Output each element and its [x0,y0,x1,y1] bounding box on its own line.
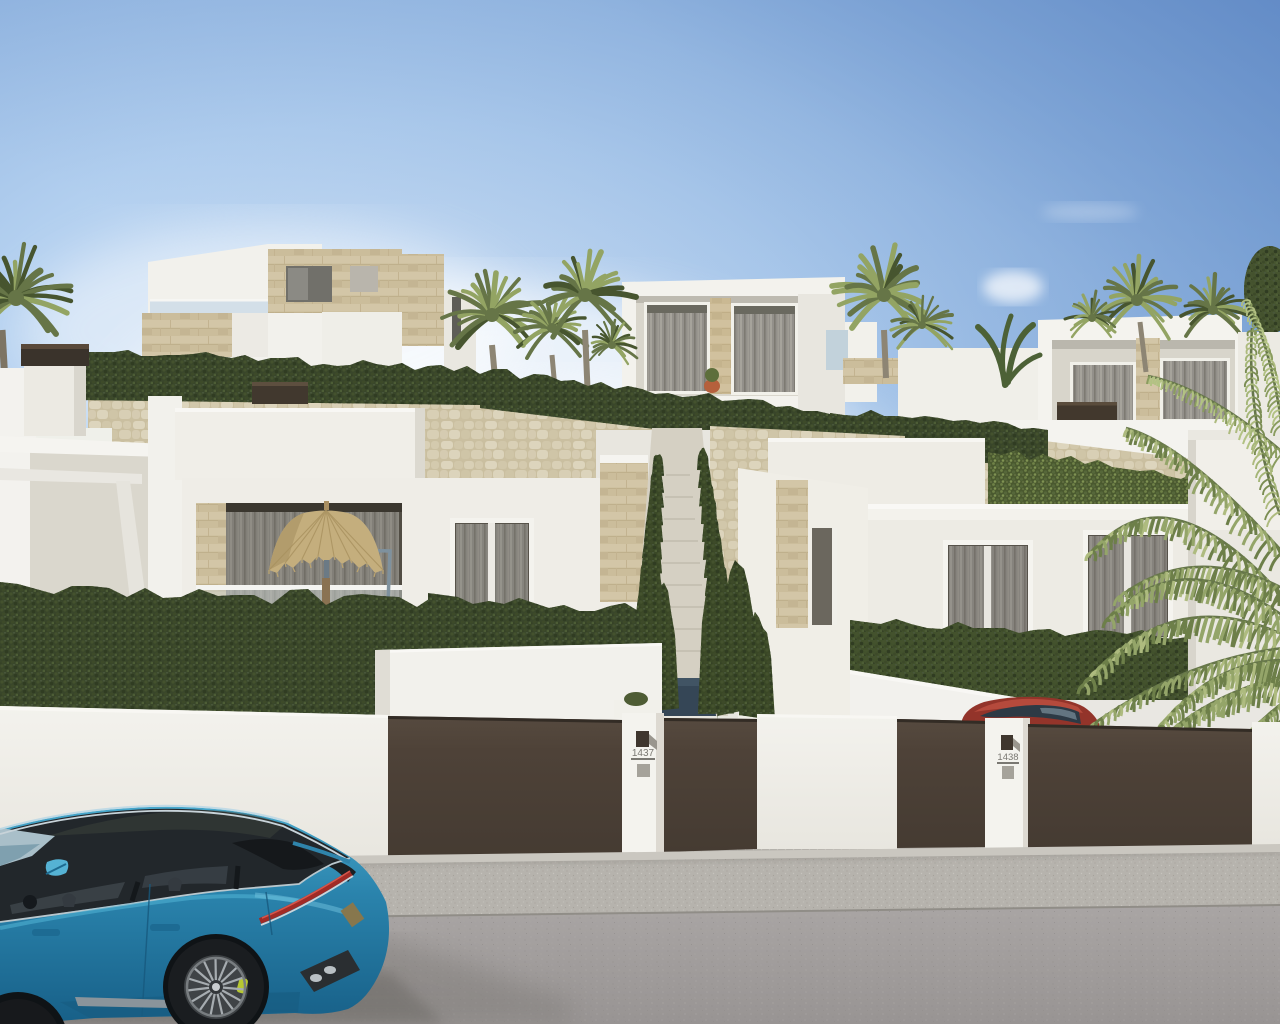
svg-text:1438: 1438 [997,752,1018,763]
svg-text:1437: 1437 [632,748,655,759]
